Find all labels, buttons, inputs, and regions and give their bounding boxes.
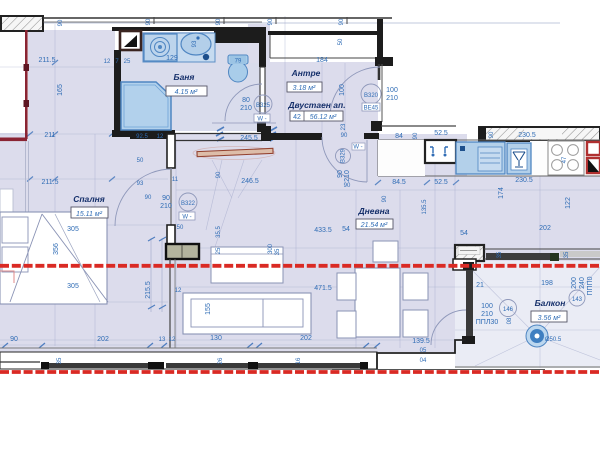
svg-text:13: 13 xyxy=(159,337,166,343)
svg-text:16: 16 xyxy=(296,357,302,364)
svg-text:210: 210 xyxy=(386,95,398,102)
svg-text:433.5: 433.5 xyxy=(314,227,332,234)
svg-text:93: 93 xyxy=(192,40,198,47)
svg-text:90: 90 xyxy=(146,18,152,25)
svg-text:471.5: 471.5 xyxy=(314,285,332,292)
svg-text:210: 210 xyxy=(240,105,252,112)
svg-text:100: 100 xyxy=(481,303,493,310)
svg-text:B329: B329 xyxy=(341,148,347,163)
svg-text:BE45: BE45 xyxy=(364,106,379,112)
svg-text:100: 100 xyxy=(339,84,346,96)
svg-text:W -: W - xyxy=(182,215,191,221)
svg-text:90: 90 xyxy=(339,18,345,25)
svg-text:90: 90 xyxy=(268,18,274,25)
svg-text:35.5: 35.5 xyxy=(216,226,222,238)
svg-text:Ø50.5: Ø50.5 xyxy=(545,337,562,343)
svg-text:35: 35 xyxy=(564,251,570,258)
svg-text:52.5: 52.5 xyxy=(434,179,448,186)
svg-text:202: 202 xyxy=(300,335,312,342)
svg-text:240: 240 xyxy=(579,277,586,289)
svg-text:21.54 м²: 21.54 м² xyxy=(360,222,388,229)
svg-text:B322: B322 xyxy=(181,201,196,207)
svg-text:211: 211 xyxy=(44,132,55,139)
svg-text:230.5: 230.5 xyxy=(518,132,536,139)
svg-text:04: 04 xyxy=(420,358,427,364)
svg-text:47: 47 xyxy=(562,156,568,163)
svg-text:210: 210 xyxy=(344,170,351,182)
svg-text:84: 84 xyxy=(395,133,403,140)
svg-text:90: 90 xyxy=(489,131,495,138)
svg-text:90: 90 xyxy=(10,336,18,343)
svg-text:211.5: 211.5 xyxy=(39,57,56,64)
svg-text:146: 146 xyxy=(503,307,514,313)
svg-text:90: 90 xyxy=(344,183,351,189)
svg-text:W -: W - xyxy=(257,117,266,123)
svg-text:90: 90 xyxy=(337,170,344,178)
svg-text:90: 90 xyxy=(58,19,64,26)
svg-text:90: 90 xyxy=(145,195,152,201)
svg-text:90: 90 xyxy=(341,133,348,139)
svg-text:90: 90 xyxy=(413,132,419,139)
svg-text:202: 202 xyxy=(97,336,109,343)
svg-text:198: 198 xyxy=(541,280,553,287)
svg-text:79: 79 xyxy=(235,59,242,65)
svg-text:54: 54 xyxy=(342,226,350,233)
svg-text:245.5: 245.5 xyxy=(240,135,258,142)
svg-text:Дневна: Дневна xyxy=(358,206,390,216)
svg-text:05: 05 xyxy=(420,348,427,354)
svg-text:52.5: 52.5 xyxy=(434,130,448,137)
svg-text:W -: W - xyxy=(353,145,362,151)
svg-text:139.5: 139.5 xyxy=(412,338,430,345)
svg-text:84.5: 84.5 xyxy=(392,179,406,186)
svg-text:B320: B320 xyxy=(364,93,379,99)
svg-text:305: 305 xyxy=(67,226,79,233)
svg-text:15.11 м²: 15.11 м² xyxy=(76,211,103,218)
svg-text:12: 12 xyxy=(104,59,111,65)
svg-text:42: 42 xyxy=(293,114,301,121)
svg-text:Антре: Антре xyxy=(291,68,321,78)
svg-text:90: 90 xyxy=(162,195,170,202)
svg-text:08: 08 xyxy=(507,317,513,324)
svg-text:23: 23 xyxy=(341,123,347,130)
svg-text:4.15 м²: 4.15 м² xyxy=(175,89,198,96)
svg-text:50: 50 xyxy=(177,225,184,231)
svg-text:210: 210 xyxy=(481,311,493,318)
svg-text:155: 155 xyxy=(205,303,212,315)
svg-text:12: 12 xyxy=(157,134,164,140)
svg-text:Двустаен ап.: Двустаен ап. xyxy=(287,100,345,110)
svg-text:165: 165 xyxy=(57,84,64,96)
svg-text:56.12 м²: 56.12 м² xyxy=(310,114,337,121)
svg-text:215.5: 215.5 xyxy=(145,281,152,299)
svg-text:11: 11 xyxy=(172,177,179,183)
svg-text:211.5: 211.5 xyxy=(42,179,59,186)
svg-text:54: 54 xyxy=(460,230,468,237)
svg-text:50: 50 xyxy=(137,158,144,164)
svg-text:174: 174 xyxy=(498,187,505,199)
svg-text:305: 305 xyxy=(67,283,79,290)
svg-text:230.5: 230.5 xyxy=(515,177,533,184)
svg-text:135.5: 135.5 xyxy=(422,199,428,215)
svg-text:100: 100 xyxy=(386,87,398,94)
svg-text:200: 200 xyxy=(571,277,578,289)
svg-text:130: 130 xyxy=(210,335,222,342)
svg-text:ППП0: ППП0 xyxy=(587,276,594,295)
svg-text:26: 26 xyxy=(218,357,224,364)
svg-text:90: 90 xyxy=(216,171,222,178)
svg-text:210: 210 xyxy=(160,203,172,210)
svg-text:184: 184 xyxy=(316,57,328,64)
svg-text:93: 93 xyxy=(137,181,144,187)
svg-text:25: 25 xyxy=(216,247,222,254)
svg-text:90: 90 xyxy=(382,195,388,202)
svg-text:12: 12 xyxy=(169,337,176,343)
svg-text:Баня: Баня xyxy=(174,72,195,82)
svg-text:143: 143 xyxy=(572,297,583,303)
svg-text:3.56 м²: 3.56 м² xyxy=(538,315,561,322)
svg-text:35: 35 xyxy=(275,248,281,255)
svg-text:B325: B325 xyxy=(256,103,271,109)
svg-text:356: 356 xyxy=(53,243,60,255)
svg-text:21: 21 xyxy=(476,282,484,289)
svg-text:35: 35 xyxy=(497,251,503,258)
svg-text:246.5: 246.5 xyxy=(241,178,259,185)
svg-text:90: 90 xyxy=(216,18,222,25)
svg-text:50: 50 xyxy=(338,38,344,45)
svg-text:12: 12 xyxy=(175,288,182,294)
svg-text:300: 300 xyxy=(268,243,274,254)
svg-text:25: 25 xyxy=(124,59,131,65)
svg-text:202: 202 xyxy=(539,225,551,232)
svg-text:122: 122 xyxy=(565,197,572,209)
svg-text:35: 35 xyxy=(57,357,63,364)
svg-text:129: 129 xyxy=(166,55,178,62)
svg-text:Спалня: Спалня xyxy=(73,194,105,204)
svg-text:92.5: 92.5 xyxy=(136,134,148,140)
svg-text:Балкон: Балкон xyxy=(535,298,566,308)
svg-text:ППЛ30: ППЛ30 xyxy=(476,319,499,326)
svg-text:3.18 м²: 3.18 м² xyxy=(293,85,316,92)
svg-text:80: 80 xyxy=(242,97,250,104)
